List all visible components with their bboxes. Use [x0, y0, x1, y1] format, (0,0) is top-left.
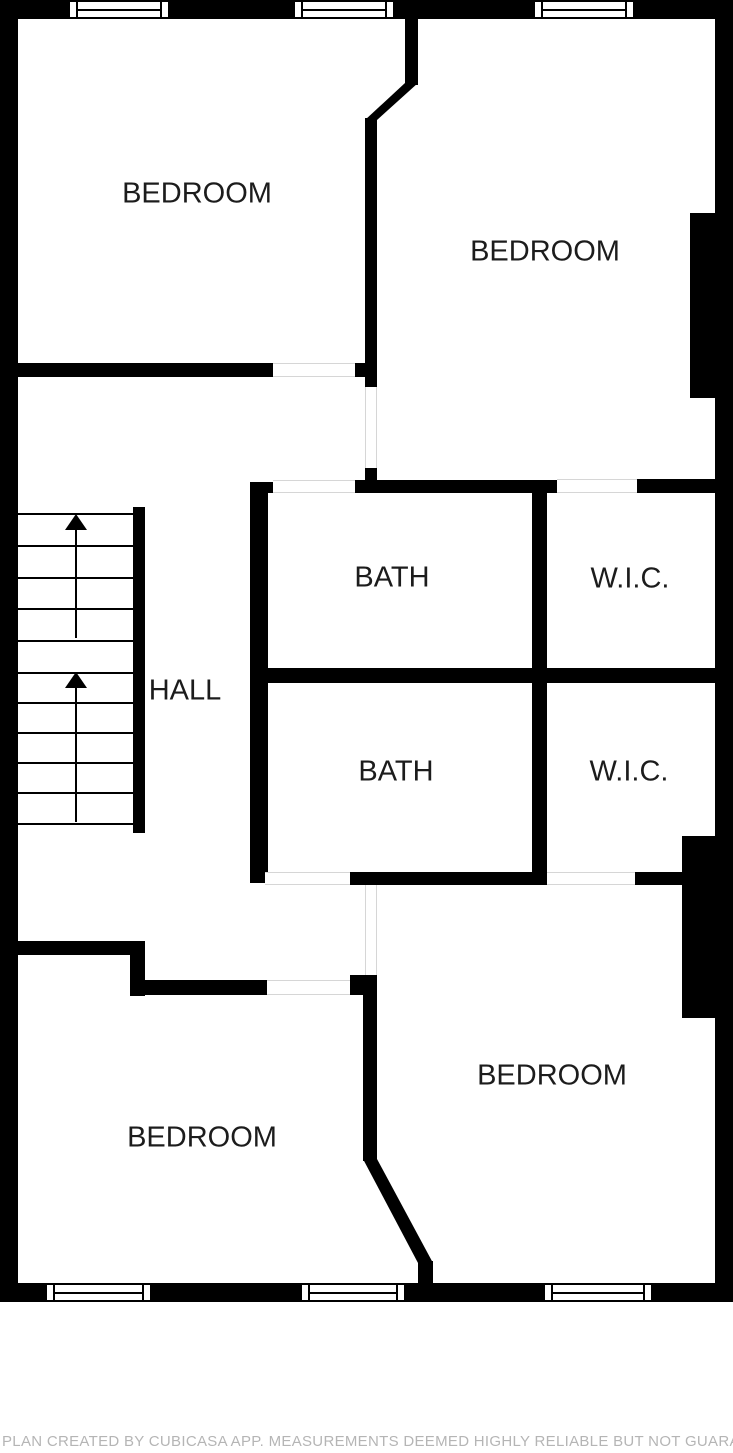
- window: [45, 1283, 152, 1302]
- wall: [690, 213, 715, 398]
- wall: [715, 0, 733, 1302]
- room-label-bath-lower: BATH: [358, 756, 433, 789]
- window-frame-cap: [551, 1284, 553, 1301]
- window-frame-cap: [142, 1284, 144, 1301]
- wall: [130, 980, 267, 995]
- window-frame-cap: [541, 1, 543, 18]
- door-opening: [273, 480, 355, 493]
- up-arrow-icon: [65, 514, 87, 530]
- stair-tread: [18, 640, 133, 642]
- window: [533, 0, 635, 19]
- wall: [682, 836, 715, 1018]
- stair-tread: [18, 823, 133, 825]
- stair-direction-line: [75, 528, 77, 638]
- wall-diagonal: [363, 1159, 433, 1263]
- window-pane-line: [542, 9, 626, 11]
- window: [293, 0, 395, 19]
- door-opening: [267, 980, 350, 995]
- wall: [250, 668, 733, 683]
- wall: [0, 0, 18, 1302]
- window-frame-cap: [76, 1, 78, 18]
- wall: [350, 872, 550, 885]
- window-pane-line: [77, 9, 161, 11]
- wall: [365, 118, 377, 388]
- wall: [635, 872, 683, 885]
- wall-diagonal: [365, 83, 418, 120]
- disclaimer-text: PLAN CREATED BY CUBICASA APP. MEASUREMEN…: [2, 1433, 733, 1450]
- wall: [133, 507, 145, 833]
- room-label-wic-upper: W.I.C.: [591, 563, 670, 596]
- wall: [18, 363, 273, 377]
- window-pane-line: [302, 9, 386, 11]
- window-frame-cap: [625, 1, 627, 18]
- window-frame-cap: [385, 1, 387, 18]
- wall: [637, 479, 715, 493]
- wall: [405, 19, 418, 85]
- door-opening: [557, 479, 637, 493]
- door-opening: [273, 363, 355, 377]
- room-label-bedroom-bottom-left: BEDROOM: [127, 1122, 277, 1155]
- wall: [0, 941, 145, 955]
- room-label-bath-upper: BATH: [354, 562, 429, 595]
- window: [543, 1283, 653, 1302]
- window-frame-cap: [53, 1284, 55, 1301]
- door-opening: [547, 872, 635, 885]
- window-pane-line: [54, 1292, 143, 1294]
- wall: [363, 993, 377, 1161]
- floor-plan: BEDROOMBEDROOMBATHW.I.C.HALLBATHW.I.C.BE…: [0, 0, 733, 1302]
- window-frame-cap: [643, 1284, 645, 1301]
- wall: [355, 480, 557, 493]
- window-frame-cap: [308, 1284, 310, 1301]
- window-frame-cap: [160, 1, 162, 18]
- room-label-bedroom-top-left: BEDROOM: [122, 178, 272, 211]
- wall: [418, 1261, 433, 1285]
- room-label-hall: HALL: [149, 675, 222, 708]
- wall: [350, 975, 377, 995]
- stairs: [18, 513, 133, 833]
- window-pane-line: [309, 1292, 397, 1294]
- room-label-bedroom-bottom-right: BEDROOM: [477, 1060, 627, 1093]
- window-frame-cap: [396, 1284, 398, 1301]
- stair-direction-line: [75, 686, 77, 822]
- up-arrow-icon: [65, 672, 87, 688]
- room-label-wic-lower: W.I.C.: [590, 756, 669, 789]
- window-frame-cap: [301, 1, 303, 18]
- room-label-bedroom-top-right: BEDROOM: [470, 236, 620, 269]
- floor-plan-page: { "title": "Floor Plan", "disclaimer": "…: [0, 0, 733, 1453]
- window-pane-line: [552, 1292, 644, 1294]
- door-opening: [365, 387, 377, 468]
- door-opening: [265, 872, 350, 885]
- window: [300, 1283, 406, 1302]
- window: [68, 0, 170, 19]
- door-opening: [365, 885, 377, 975]
